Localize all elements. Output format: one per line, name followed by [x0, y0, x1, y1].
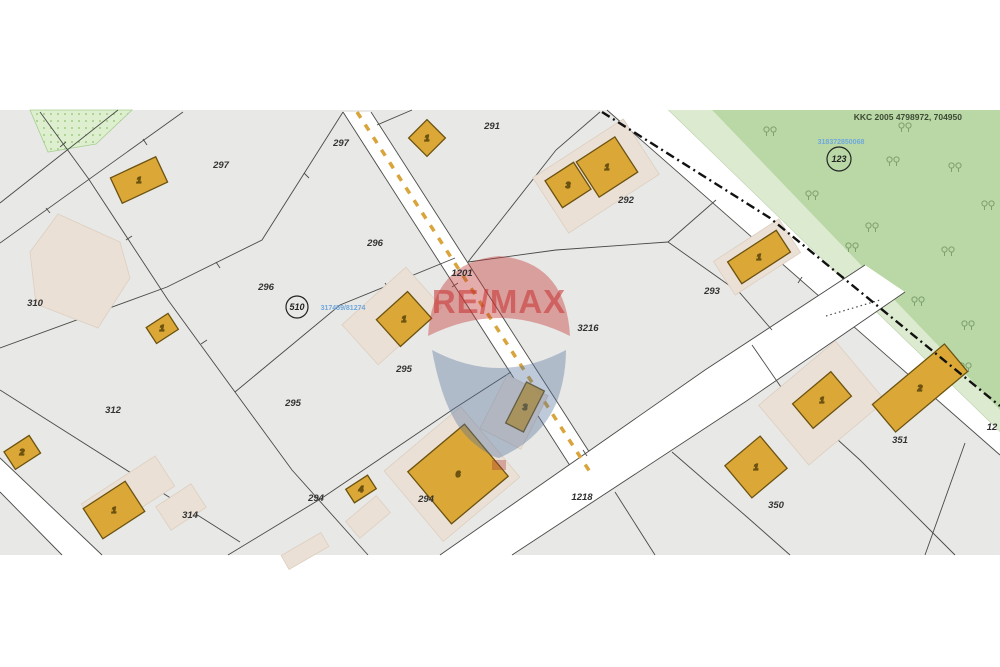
svg-text:2: 2 [19, 447, 25, 457]
svg-text:1: 1 [605, 162, 610, 172]
parcel-label: 350 [768, 500, 785, 511]
road-number-label: 1201 [451, 268, 472, 279]
road-number-label: 1218 [571, 492, 593, 503]
remax-basket [492, 460, 506, 470]
parcel-label: 297 [212, 160, 230, 171]
parcel-label: 292 [617, 195, 635, 206]
svg-text:4: 4 [358, 484, 364, 494]
circle-123-label: 123 [831, 154, 846, 164]
svg-text:3: 3 [566, 180, 571, 190]
circle-510-label: 510 [289, 302, 304, 312]
parcel-label: 314 [182, 510, 199, 521]
cadastral-id: 318372850068 [818, 139, 865, 146]
parcel-label: 291 [483, 121, 500, 132]
svg-text:1: 1 [754, 462, 759, 472]
parcel-label: 294 [417, 494, 435, 505]
parcel-label: 293 [703, 286, 721, 297]
road-number-label: 12 [987, 422, 998, 433]
svg-text:2: 2 [917, 383, 923, 393]
svg-text:1: 1 [820, 395, 825, 405]
svg-text:1: 1 [402, 314, 407, 324]
svg-text:1: 1 [757, 252, 762, 262]
parcel-label: 312 [105, 405, 122, 416]
remax-wordmark: RE/MAX [432, 283, 566, 320]
parcel-label: 296 [366, 238, 384, 249]
svg-text:1: 1 [137, 175, 142, 185]
svg-text:1: 1 [160, 323, 165, 333]
coordinate-reference: KKC 2005 4798972, 704950 [854, 112, 962, 122]
parcel-label: 297 [332, 138, 350, 149]
parcel-label: 294 [307, 493, 325, 504]
parcel-label: 351 [892, 435, 908, 446]
cadastral-id: 317459/81274 [321, 305, 366, 312]
svg-text:6: 6 [456, 469, 461, 479]
parcel-label: 295 [284, 398, 302, 409]
map-canvas[interactable]: 1 1 3 1 1 1 2 1 3 6 4 2 1 1 1 [0, 0, 1000, 667]
parcel-label: 296 [257, 282, 275, 293]
parcel-label: 3216 [577, 323, 599, 334]
cadastral-map-page: 1 1 3 1 1 1 2 1 3 6 4 2 1 1 1 [0, 0, 1000, 667]
parcel-label: 295 [395, 364, 413, 375]
svg-text:1: 1 [425, 133, 430, 143]
svg-text:1: 1 [112, 505, 117, 515]
parcel-label: 310 [27, 298, 44, 309]
